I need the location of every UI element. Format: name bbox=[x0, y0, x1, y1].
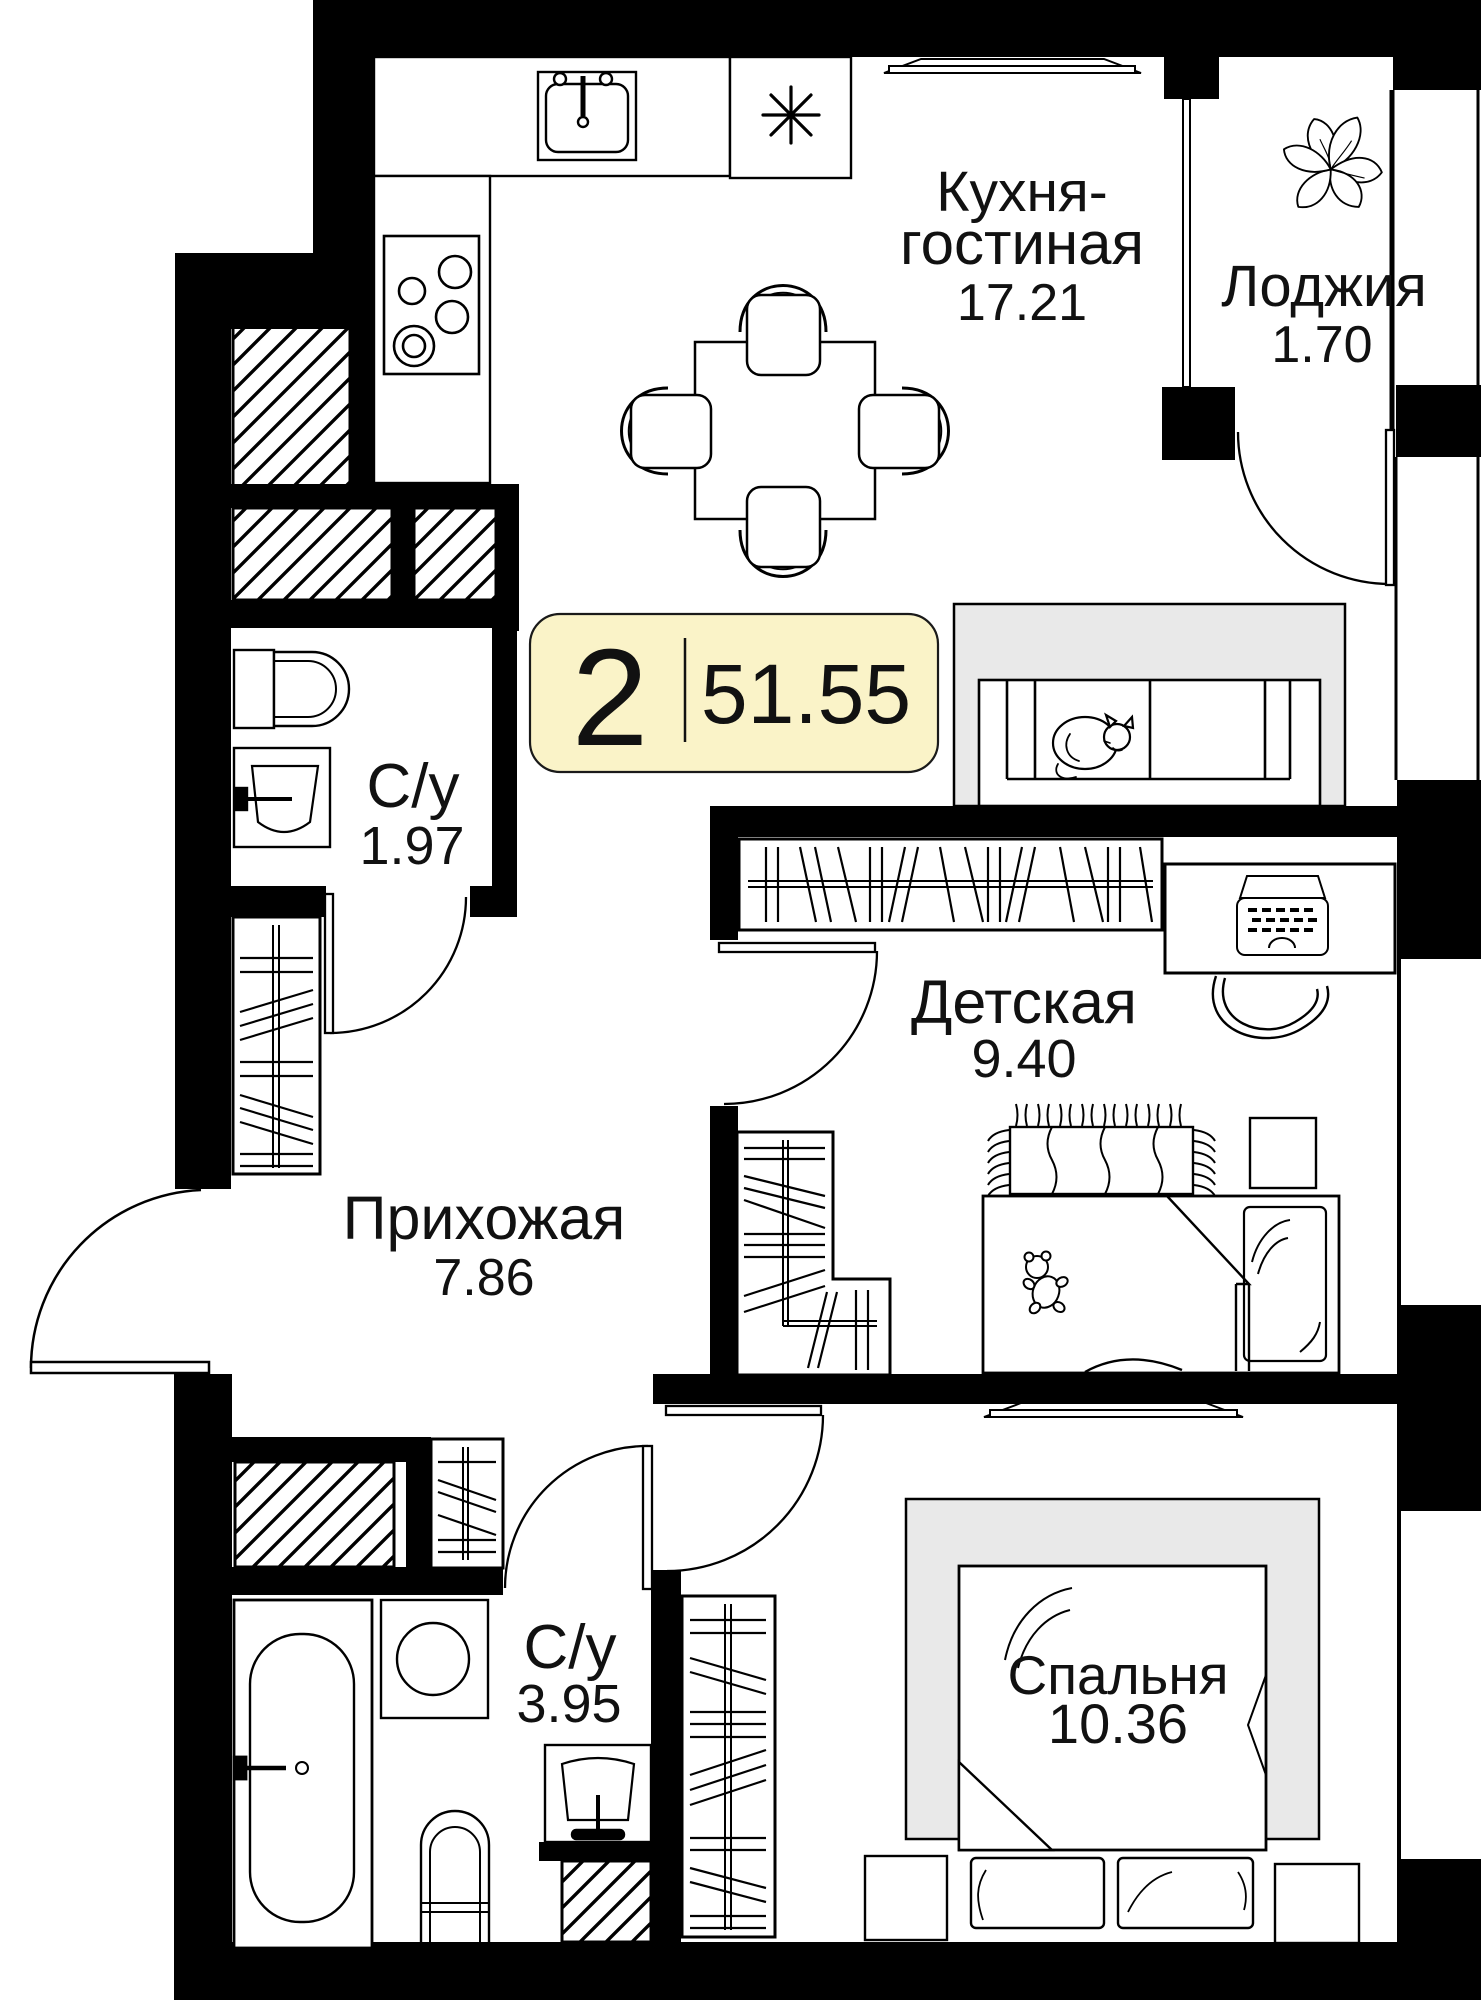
svg-text:Детская: Детская bbox=[911, 968, 1137, 1036]
svg-text:1.70: 1.70 bbox=[1271, 316, 1372, 374]
svg-text:10.36: 10.36 bbox=[1048, 1692, 1188, 1755]
svg-text:1.97: 1.97 bbox=[359, 816, 464, 876]
svg-text:2: 2 bbox=[572, 621, 649, 775]
svg-text:7.86: 7.86 bbox=[433, 1249, 534, 1307]
svg-text:С/у: С/у bbox=[524, 1613, 617, 1682]
svg-text:3.95: 3.95 bbox=[516, 1674, 621, 1734]
svg-text:9.40: 9.40 bbox=[971, 1029, 1076, 1089]
svg-text:51.55: 51.55 bbox=[701, 647, 911, 741]
svg-text:17.21: 17.21 bbox=[957, 274, 1087, 332]
svg-text:гостиная: гостиная bbox=[900, 210, 1144, 277]
svg-text:Прихожая: Прихожая bbox=[343, 1184, 626, 1252]
svg-text:Лоджия: Лоджия bbox=[1221, 254, 1427, 319]
svg-text:С/у: С/у bbox=[367, 752, 460, 821]
